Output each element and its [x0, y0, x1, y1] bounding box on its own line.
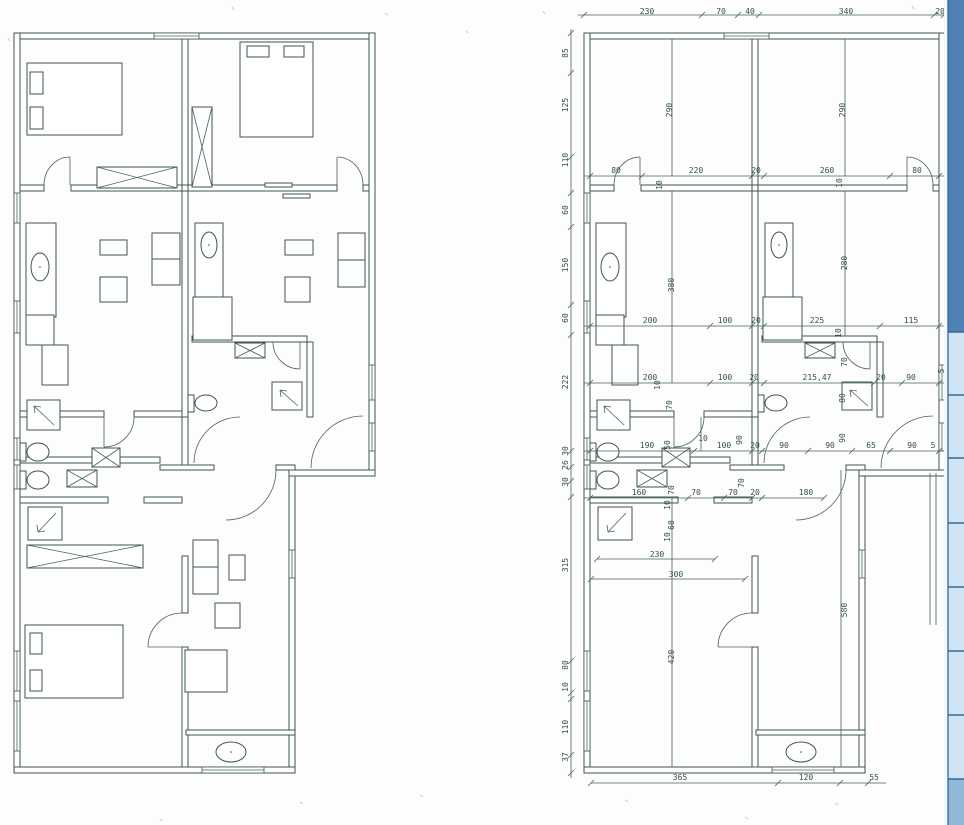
- svg-text:315: 315: [561, 558, 570, 573]
- svg-text:85: 85: [561, 48, 570, 58]
- floor-plan-dimensioned: 2307040340208512511060150602223026303158…: [561, 7, 947, 786]
- svg-text:60: 60: [561, 313, 570, 323]
- svg-text:290: 290: [838, 103, 847, 118]
- table: [215, 603, 240, 628]
- svg-text:10: 10: [835, 178, 844, 188]
- svg-text:90: 90: [735, 435, 744, 445]
- svg-text:110: 110: [561, 153, 570, 168]
- svg-text:300: 300: [669, 570, 684, 579]
- svg-text:70: 70: [728, 488, 738, 497]
- svg-text:580: 580: [840, 603, 849, 618]
- svg-text:50: 50: [663, 440, 672, 450]
- svg-text:10: 10: [834, 328, 843, 338]
- svg-text:100: 100: [718, 316, 733, 325]
- bed: [240, 42, 313, 137]
- svg-text:20: 20: [749, 373, 759, 382]
- svg-text:100: 100: [717, 441, 732, 450]
- wardrobe-icon: [192, 107, 212, 187]
- svg-text:70: 70: [737, 478, 746, 488]
- svg-text:220: 220: [689, 166, 704, 175]
- svg-text:10: 10: [561, 682, 570, 692]
- svg-text:80: 80: [838, 393, 847, 403]
- svg-text:20: 20: [750, 488, 760, 497]
- svg-text:200: 200: [643, 316, 658, 325]
- svg-text:55: 55: [869, 773, 879, 782]
- svg-text:120: 120: [799, 773, 814, 782]
- svg-text:230: 230: [650, 550, 665, 559]
- wardrobe-icon: [27, 545, 143, 568]
- svg-text:70: 70: [667, 485, 676, 495]
- svg-text:225: 225: [810, 316, 825, 325]
- svg-text:20: 20: [876, 373, 886, 382]
- svg-text:80: 80: [611, 166, 621, 175]
- svg-text:110: 110: [561, 720, 570, 735]
- svg-text:420: 420: [667, 650, 676, 665]
- svg-text:60: 60: [561, 205, 570, 215]
- scanned-drawing-page: 2307040340208512511060150602223026303158…: [0, 0, 964, 825]
- svg-text:340: 340: [839, 7, 854, 16]
- sofa: [193, 540, 218, 594]
- svg-text:10: 10: [655, 180, 664, 190]
- svg-text:70: 70: [665, 400, 674, 410]
- svg-text:90: 90: [907, 441, 917, 450]
- wardrobe-icon: [97, 167, 177, 188]
- svg-text:80: 80: [912, 166, 922, 175]
- svg-text:70: 70: [716, 7, 726, 16]
- svg-text:230: 230: [640, 7, 655, 16]
- svg-text:10: 10: [653, 380, 662, 390]
- svg-text:222: 222: [561, 375, 570, 390]
- svg-text:90: 90: [906, 373, 916, 382]
- table: [229, 555, 245, 580]
- svg-text:10: 10: [698, 434, 708, 443]
- svg-text:280: 280: [840, 256, 849, 271]
- floor-plan-drawing: 2307040340208512511060150602223026303158…: [0, 0, 964, 825]
- table: [285, 240, 313, 255]
- sofa: [152, 233, 180, 285]
- svg-text:115: 115: [904, 316, 919, 325]
- svg-text:40: 40: [745, 7, 755, 16]
- furniture: [25, 42, 365, 698]
- svg-text:180: 180: [799, 488, 814, 497]
- svg-text:60: 60: [667, 520, 676, 530]
- svg-text:30: 30: [561, 477, 570, 487]
- svg-text:37: 37: [561, 752, 570, 762]
- svg-text:365: 365: [673, 773, 688, 782]
- svg-text:215,47: 215,47: [803, 373, 832, 382]
- svg-text:5: 5: [931, 441, 936, 450]
- svg-text:380: 380: [667, 278, 676, 293]
- svg-text:10: 10: [663, 532, 672, 542]
- page-edge-strip: [944, 0, 964, 825]
- svg-text:160: 160: [632, 488, 647, 497]
- desk: [185, 650, 227, 692]
- svg-text:10: 10: [663, 500, 672, 510]
- svg-text:80: 80: [561, 660, 570, 670]
- svg-text:20: 20: [750, 441, 760, 450]
- dimension-lines: [672, 39, 936, 767]
- table: [100, 277, 127, 302]
- svg-text:20: 20: [751, 316, 761, 325]
- bed: [27, 63, 122, 135]
- svg-text:70: 70: [840, 357, 849, 367]
- svg-text:65: 65: [866, 441, 876, 450]
- svg-text:20: 20: [935, 7, 945, 16]
- svg-text:20: 20: [751, 166, 761, 175]
- svg-text:150: 150: [561, 258, 570, 273]
- sofa: [338, 233, 365, 287]
- svg-text:90: 90: [825, 441, 835, 450]
- svg-text:26: 26: [561, 460, 570, 470]
- table: [285, 277, 310, 302]
- svg-text:290: 290: [665, 103, 674, 118]
- table: [100, 240, 127, 255]
- floor-plan-furnished: [14, 33, 375, 773]
- shelf: [283, 194, 310, 198]
- plan-structure: [584, 33, 945, 773]
- svg-text:90: 90: [779, 441, 789, 450]
- shelf: [265, 183, 292, 187]
- svg-text:70: 70: [691, 488, 701, 497]
- svg-text:100: 100: [718, 373, 733, 382]
- svg-text:125: 125: [561, 98, 570, 113]
- bed: [25, 625, 123, 698]
- svg-text:190: 190: [640, 441, 655, 450]
- svg-text:30: 30: [561, 446, 570, 456]
- svg-text:260: 260: [820, 166, 835, 175]
- svg-text:90: 90: [838, 433, 847, 443]
